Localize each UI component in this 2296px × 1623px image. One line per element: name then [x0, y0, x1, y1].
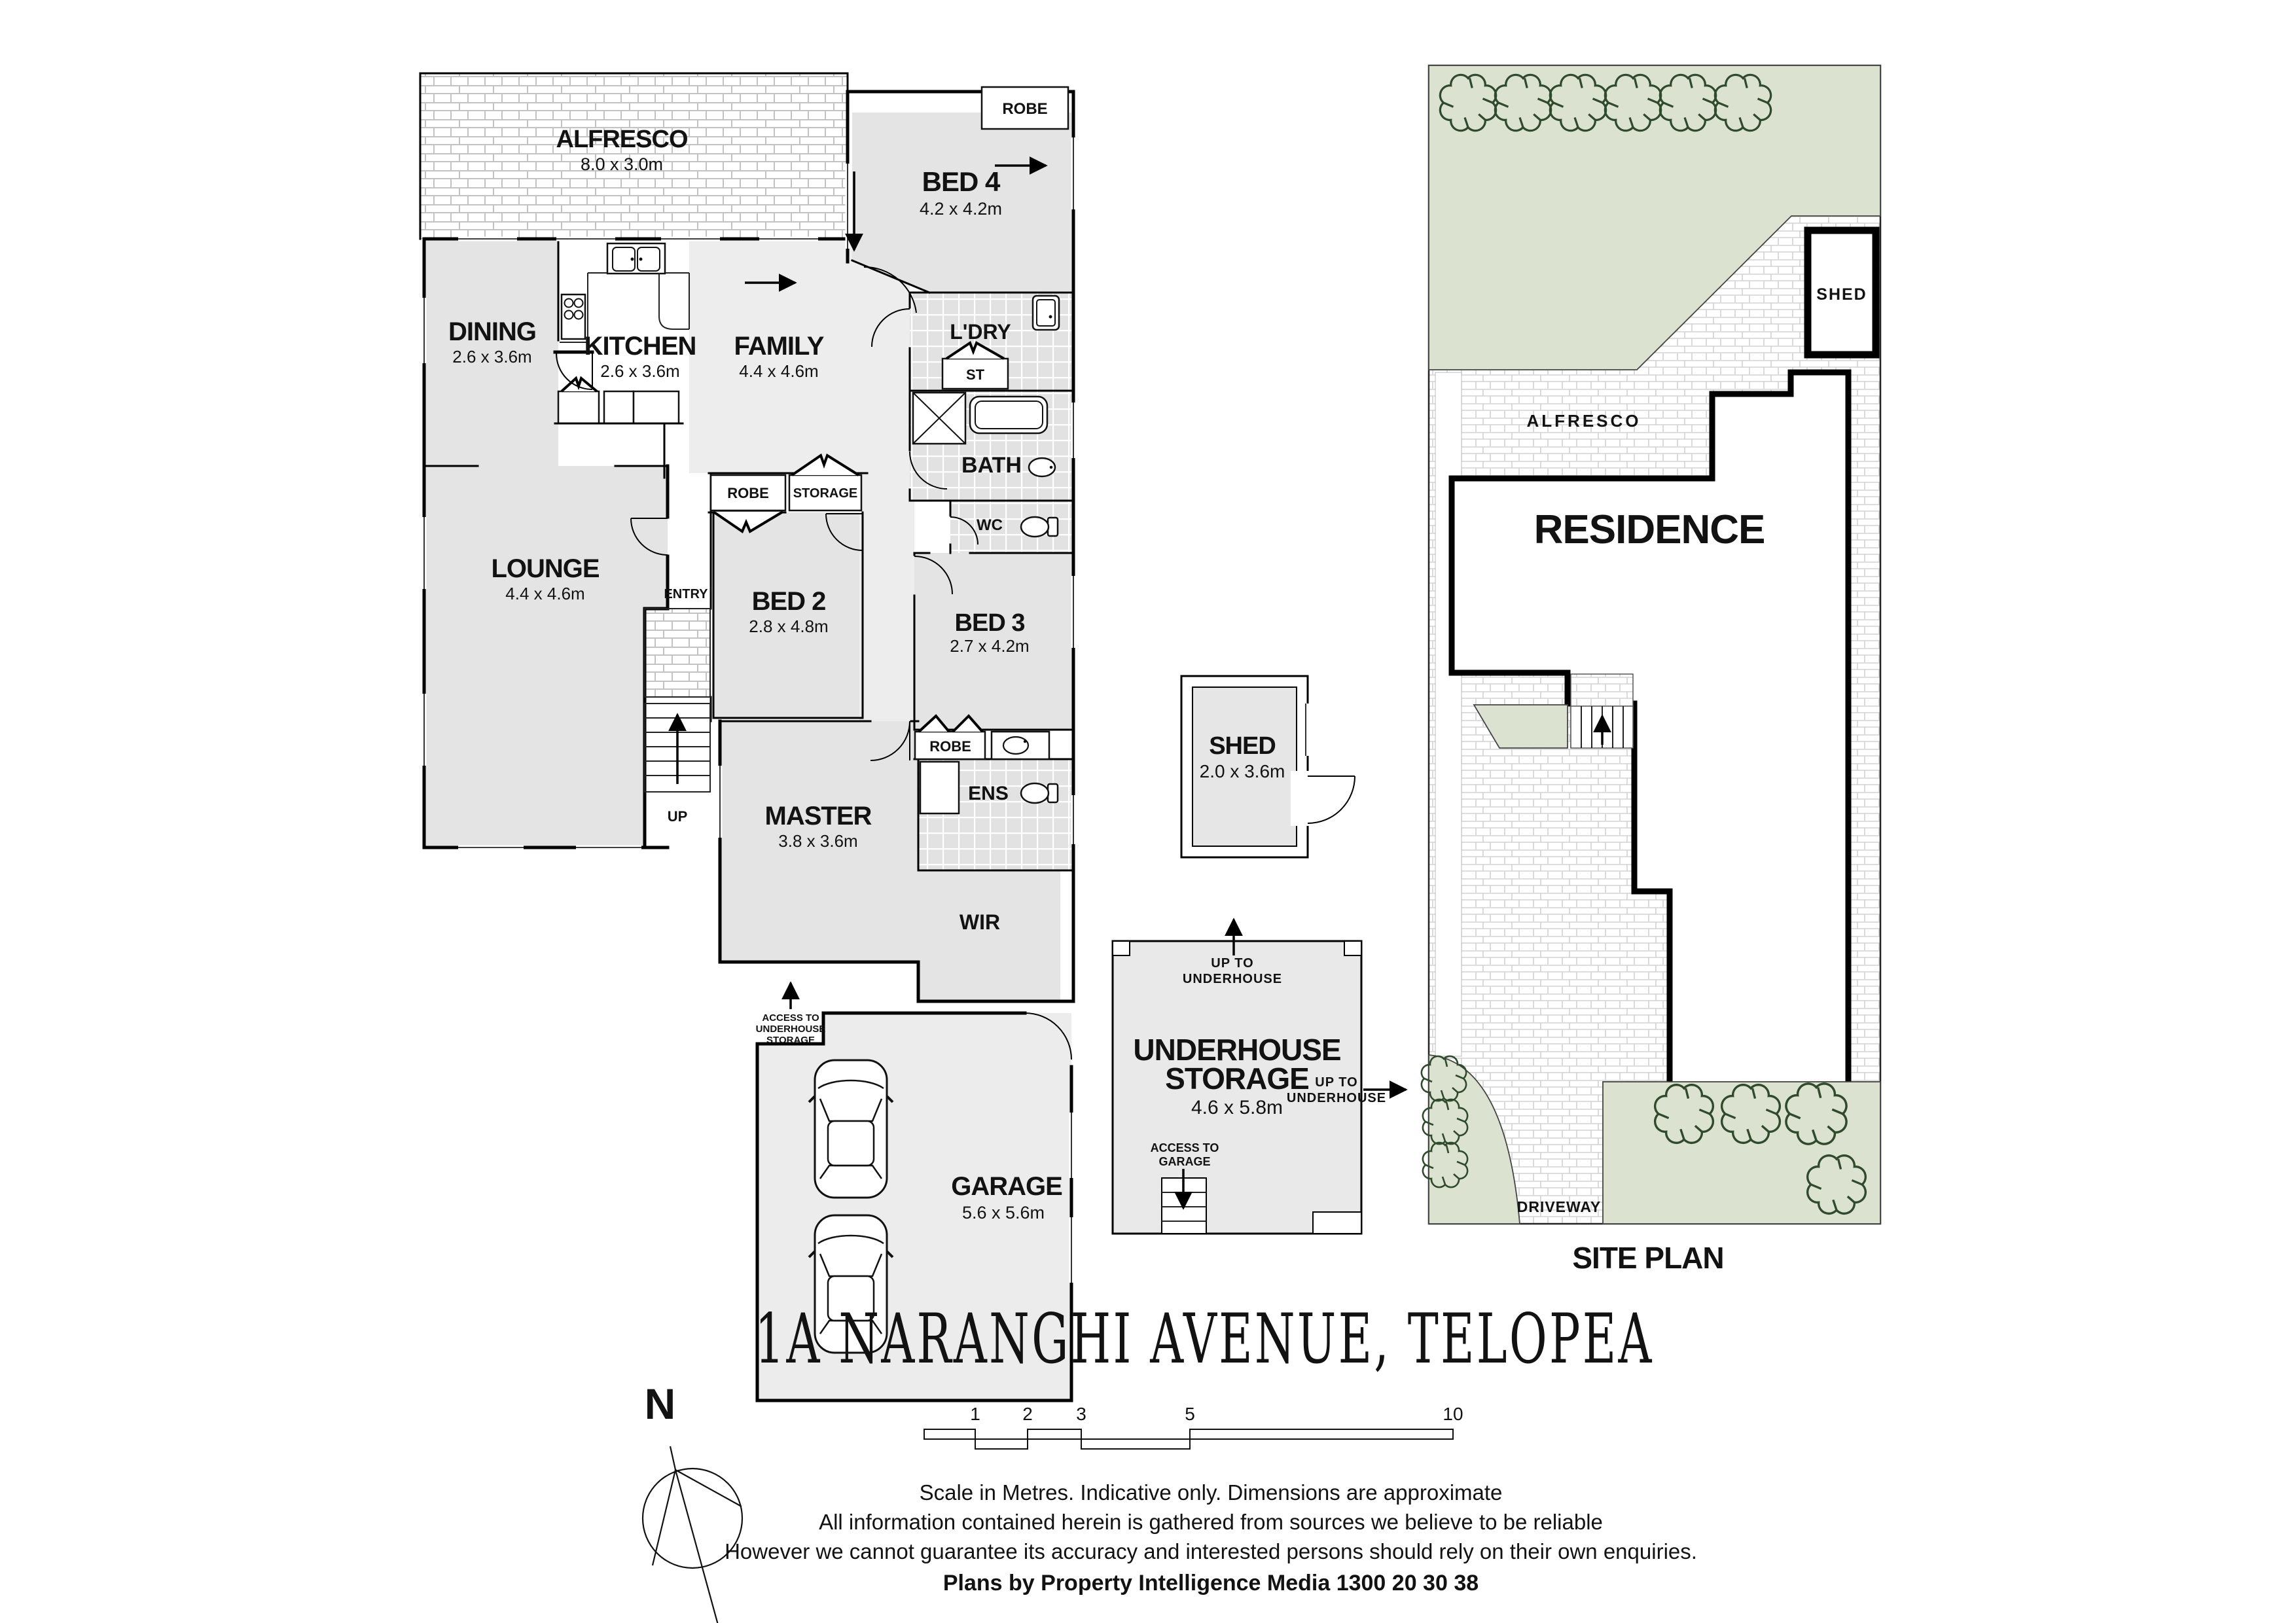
- shed-plan: SHED 2.0 x 3.6m: [1181, 676, 1355, 857]
- label-robe-bed4: ROBE: [1002, 100, 1047, 118]
- plan-canvas: ACCESS TO UNDERHOUSE STORAGE ALFRESCO 8.…: [0, 0, 2296, 1623]
- room-label-lounge: LOUNGE: [491, 554, 599, 583]
- access-underhouse-line2: UNDERHOUSE: [756, 1024, 826, 1035]
- footer-line3: However we cannot guarantee its accuracy…: [725, 1539, 1697, 1563]
- site-plan: SHED ALFRESCO RESIDENCE DRIVEWAY SITE PL…: [1422, 65, 1880, 1275]
- scale-bar: 1 2 3 5 10: [924, 1404, 1463, 1449]
- access-garage-line2: GARAGE: [1158, 1155, 1210, 1168]
- scale-bar-segments: [924, 1429, 1453, 1449]
- up-to-underhouse-top-line1: UP TO: [1211, 956, 1253, 971]
- site-plan-title: SITE PLAN: [1572, 1241, 1723, 1275]
- room-dims-shed: 2.0 x 3.6m: [1200, 761, 1285, 781]
- access-garage-line1: ACCESS TO: [1151, 1141, 1219, 1154]
- footer-line1: Scale in Metres. Indicative only. Dimens…: [920, 1480, 1503, 1505]
- room-label-shed: SHED: [1209, 732, 1276, 760]
- pantry-box: [558, 391, 599, 423]
- room-label-family: FAMILY: [734, 332, 825, 361]
- room-dims-bed4: 4.2 x 4.2m: [920, 199, 1002, 219]
- scale-tick-10: 10: [1443, 1404, 1463, 1424]
- label-up: UP: [668, 808, 688, 825]
- footer-line2: All information contained herein is gath…: [819, 1510, 1603, 1534]
- scale-tick-1: 1: [970, 1404, 980, 1424]
- entry-porch-paving: [645, 609, 710, 697]
- bathtub-icon: [970, 397, 1047, 433]
- up-to-underhouse-right-line2: UNDERHOUSE: [1287, 1091, 1386, 1105]
- label-storage: STORAGE: [793, 486, 858, 501]
- access-underhouse-line3: STORAGE: [766, 1035, 815, 1046]
- site-label-driveway: DRIVEWAY: [1517, 1198, 1602, 1215]
- oven-box: [604, 391, 634, 423]
- room-dims-alfresco: 8.0 x 3.0m: [581, 154, 663, 174]
- room-label-wir: WIR: [960, 910, 1000, 934]
- room-label-bed4: BED 4: [922, 166, 1001, 197]
- floor-plan: ACCESS TO UNDERHOUSE STORAGE ALFRESCO 8.…: [420, 73, 1076, 1400]
- lawn-front-right: [1603, 1082, 1880, 1224]
- footer-credit: Plans by Property Intelligence Media 130…: [943, 1571, 1479, 1596]
- room-label-master: MASTER: [765, 802, 872, 830]
- site-label-alfresco: ALFRESCO: [1527, 411, 1641, 431]
- room-label-bed2: BED 2: [752, 587, 826, 616]
- label-st: ST: [966, 366, 985, 383]
- compass-north-label: N: [645, 1380, 675, 1428]
- disclaimer: Scale in Metres. Indicative only. Dimens…: [725, 1480, 1697, 1596]
- wc-toilet-icon: [1021, 517, 1058, 537]
- room-dims-garage: 5.6 x 5.6m: [962, 1203, 1045, 1222]
- scale-tick-3: 3: [1076, 1404, 1086, 1424]
- fridge-box: [634, 391, 679, 423]
- room-label-dining: DINING: [448, 317, 536, 346]
- site-stairs-icon: [1571, 706, 1633, 748]
- underhouse-storage-plan: UP TO UNDERHOUSE UNDERHOUSE STORAGE 4.6 …: [1113, 919, 1406, 1234]
- label-robe-bed2: ROBE: [727, 485, 769, 501]
- room-label-kitchen: KITCHEN: [584, 332, 696, 361]
- room-label-ldry: L'DRY: [950, 320, 1011, 344]
- property-address: 1A NARANGHI AVENUE, TELOPEA: [755, 1300, 1653, 1380]
- room-label-alfresco: ALFRESCO: [556, 126, 688, 153]
- room-label-ens: ENS: [968, 783, 1009, 804]
- room-label-bath: BATH: [961, 453, 1022, 478]
- room-label-bed3: BED 3: [955, 609, 1025, 637]
- access-underhouse-line1: ACCESS TO: [762, 1012, 819, 1024]
- compass: N: [643, 1380, 742, 1623]
- car-icon: [809, 1060, 893, 1198]
- room-label-garage: GARAGE: [951, 1172, 1062, 1201]
- label-robe-bed3: ROBE: [929, 738, 971, 755]
- ens-cupboard-box: [920, 762, 959, 813]
- room-dims-master: 3.8 x 3.6m: [778, 831, 857, 851]
- room-dims-dining: 2.6 x 3.6m: [452, 347, 531, 366]
- label-entry: ENTRY: [664, 587, 708, 601]
- room-label-wc: WC: [977, 516, 1003, 534]
- floorplan-page: ACCESS TO UNDERHOUSE STORAGE ALFRESCO 8.…: [0, 0, 2296, 1623]
- kitchen-fixtures: [555, 243, 689, 478]
- up-to-underhouse-right-line1: UP TO: [1315, 1075, 1357, 1090]
- room-dims-lounge: 4.4 x 4.6m: [505, 584, 584, 603]
- room-dims-family: 4.4 x 4.6m: [739, 361, 818, 381]
- scale-tick-2: 2: [1022, 1404, 1033, 1424]
- north-arrow-icon: [643, 1446, 742, 1623]
- address-title: 1A NARANGHI AVENUE, TELOPEA: [755, 1300, 1653, 1380]
- access-underhouse-note: ACCESS TO UNDERHOUSE STORAGE: [756, 983, 826, 1046]
- room-dims-bed2: 2.8 x 4.8m: [749, 616, 828, 636]
- scale-tick-5: 5: [1185, 1404, 1195, 1424]
- site-label-residence: RESIDENCE: [1534, 507, 1765, 552]
- site-label-shed: SHED: [1816, 285, 1867, 304]
- room-dims-underhouse: 4.6 x 5.8m: [1191, 1097, 1283, 1118]
- room-dims-bed3: 2.7 x 4.2m: [950, 636, 1029, 656]
- ens-toilet-icon: [1021, 783, 1058, 803]
- up-to-underhouse-top-line2: UNDERHOUSE: [1183, 972, 1282, 986]
- room-dims-kitchen: 2.6 x 3.6m: [600, 361, 679, 381]
